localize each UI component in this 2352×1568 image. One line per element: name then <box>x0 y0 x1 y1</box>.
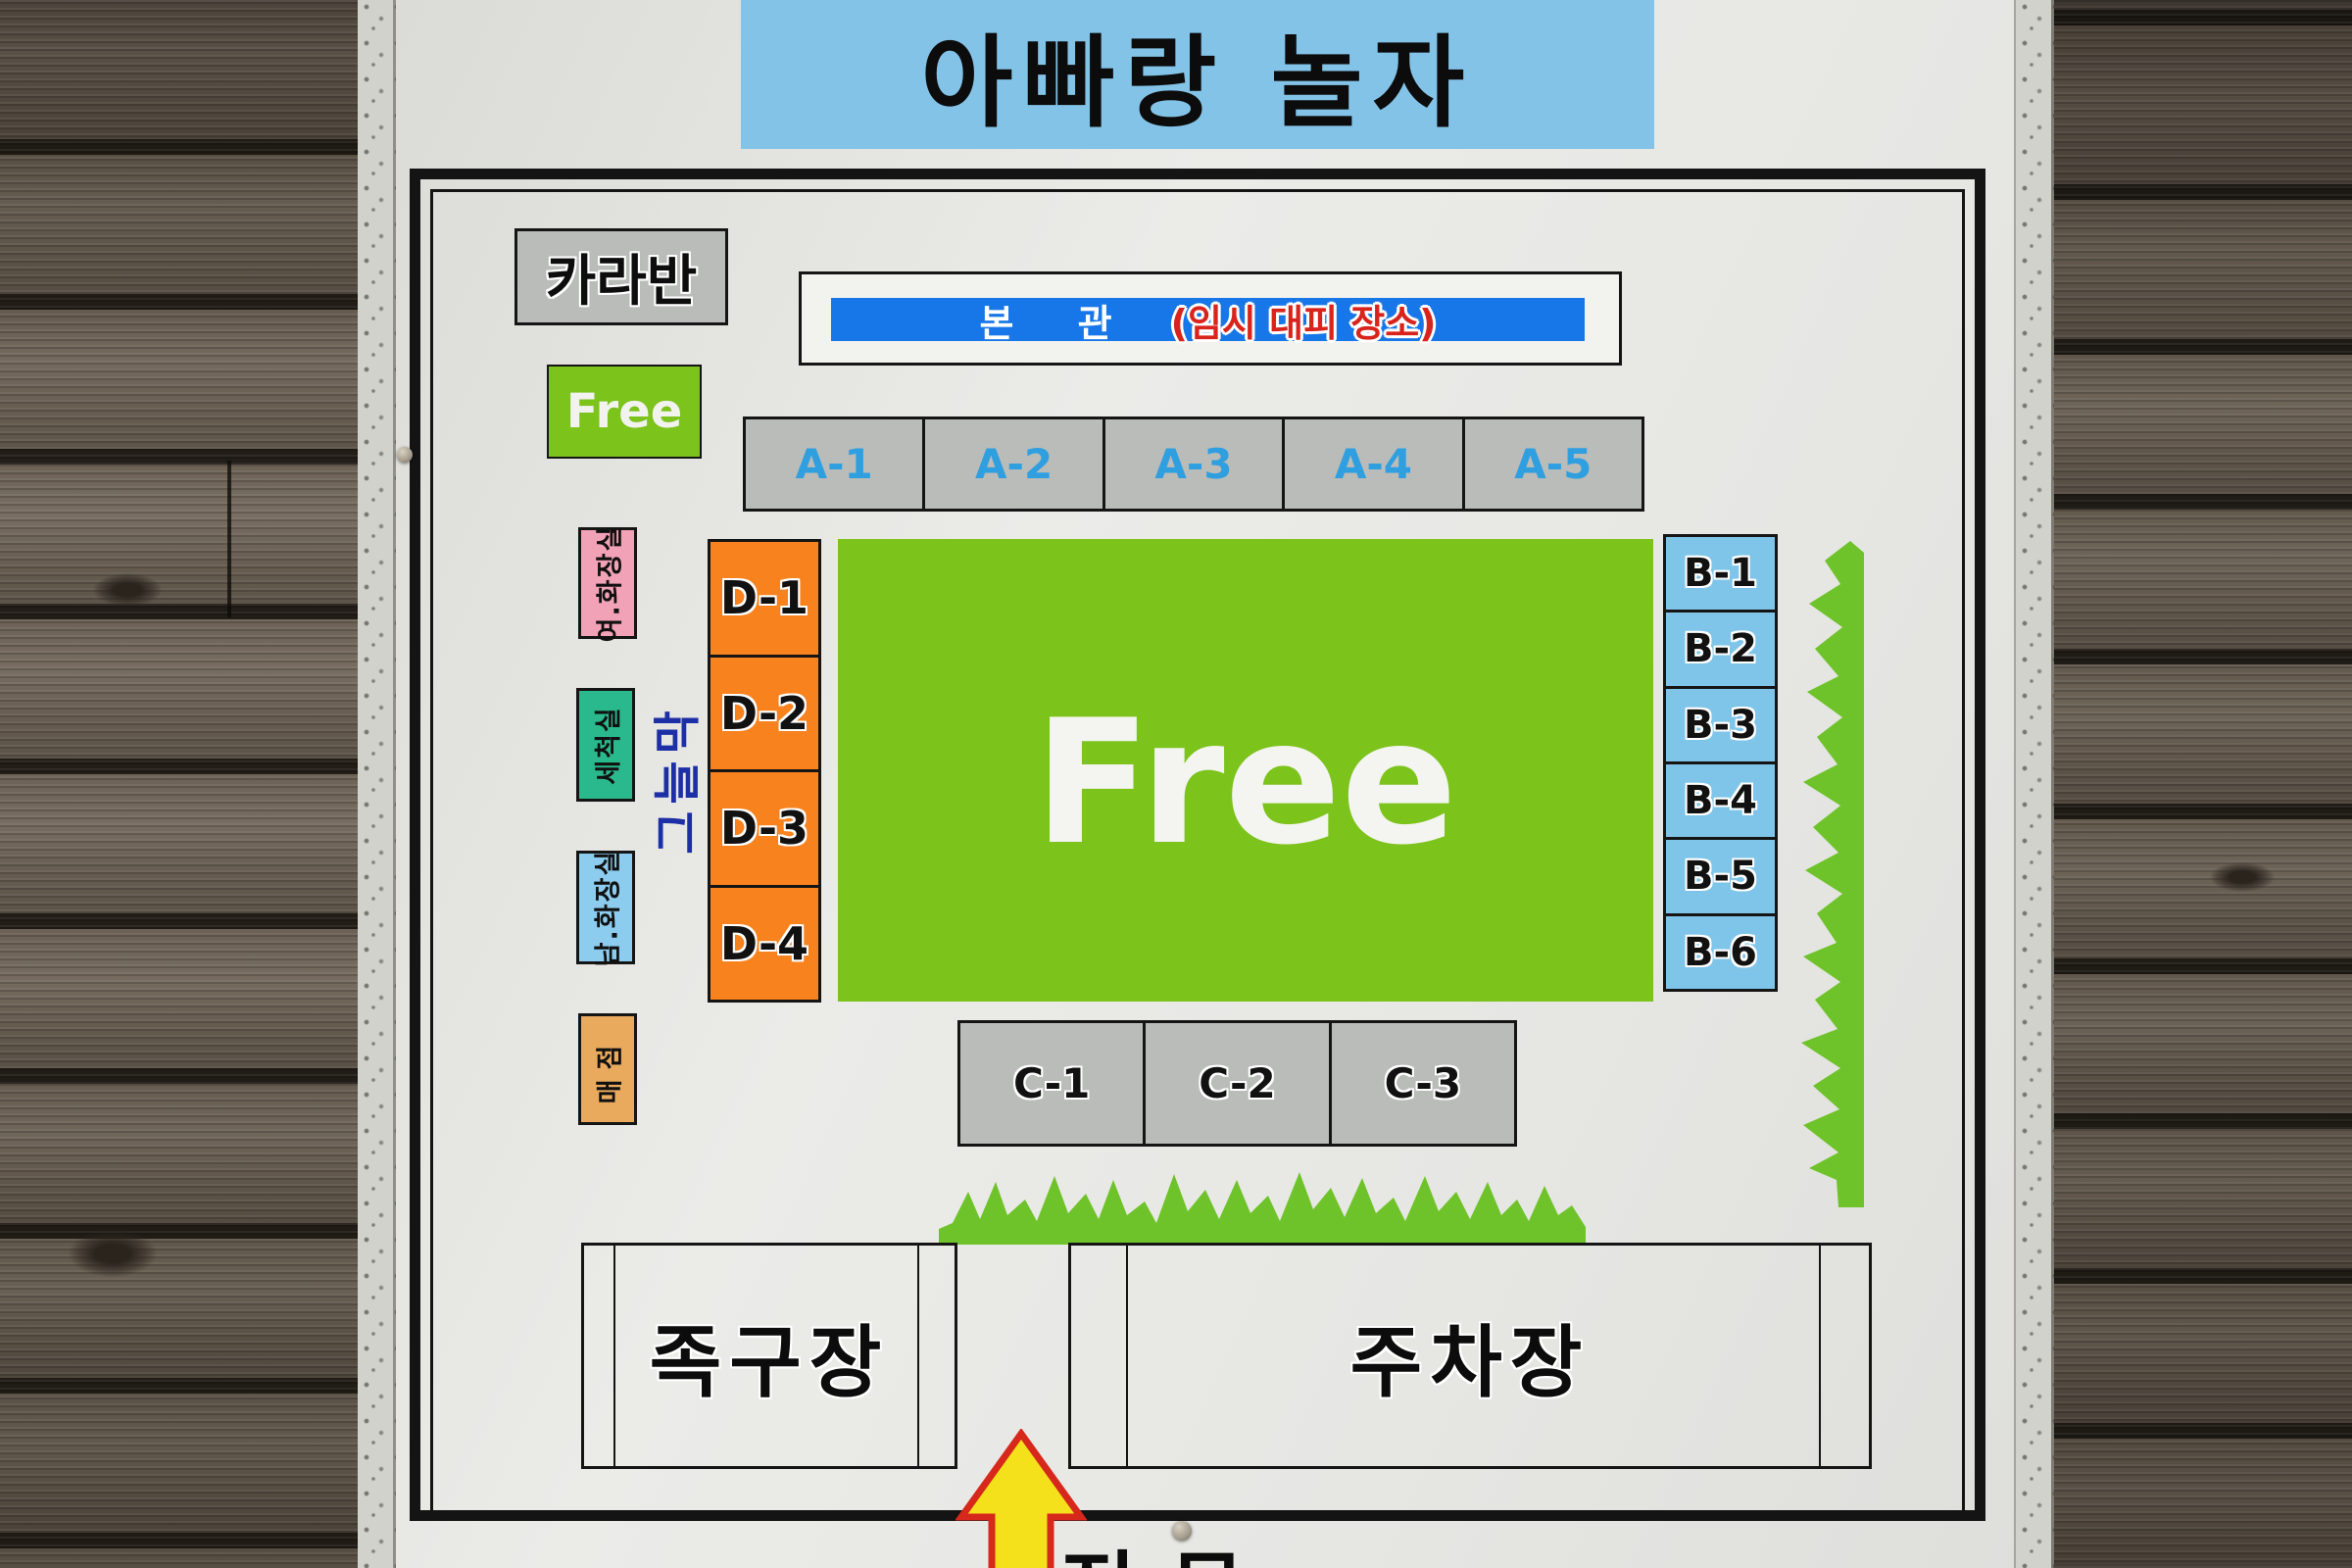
main-gate-label: 정문 <box>1060 1525 1279 1568</box>
site-a5: A-5 <box>1462 419 1641 509</box>
site-d2: D-2 <box>710 655 818 770</box>
wood-knot <box>69 1230 157 1277</box>
facility-store-label: 매점 <box>589 1035 627 1103</box>
court-inner-line <box>1819 1246 1821 1466</box>
zone-caravan-label: 카라반 <box>546 237 698 317</box>
screw <box>1172 1521 1192 1541</box>
court-inner-line <box>1126 1246 1128 1466</box>
facility-men-restroom-label: 남.화장실 <box>587 849 625 966</box>
facility-wash-room-label: 세척실 <box>587 706 625 785</box>
facility-store: 매점 <box>578 1013 637 1125</box>
main-building-label: 본 관 <box>979 293 1137 347</box>
screw <box>397 447 413 463</box>
site-c2: C-2 <box>1143 1023 1328 1144</box>
campground-map-sign-photo: 아빠랑 놀자 카라반 Free 본 관 (임시 대피 장소) A-1 A-2 A… <box>0 0 2352 1568</box>
court-inner-line <box>917 1246 919 1466</box>
site-d4: D-4 <box>710 885 818 1001</box>
wood-plank-wall-left <box>0 0 358 1568</box>
facility-shade-canopy-label: 그늘막 <box>639 704 708 854</box>
site-d1: D-1 <box>710 542 818 655</box>
grass-band-bottom <box>939 1166 1586 1245</box>
zone-caravan: 카라반 <box>514 228 728 325</box>
zone-free-field-label: Free <box>1034 659 1457 883</box>
court-inner-line <box>613 1246 615 1466</box>
site-c3: C-3 <box>1329 1023 1514 1144</box>
zone-free-small-label: Free <box>566 384 683 439</box>
site-d3: D-3 <box>710 769 818 885</box>
site-b1: B-1 <box>1666 537 1775 610</box>
main-building-note: (임시 대피 장소) <box>1171 293 1437 347</box>
wood-plank-seam <box>227 461 231 617</box>
site-row-a: A-1 A-2 A-3 A-4 A-5 <box>743 416 1644 512</box>
sign-title: 아빠랑 놀자 <box>921 3 1475 147</box>
board-edge-left <box>358 0 396 1568</box>
site-b5: B-5 <box>1666 837 1775 912</box>
wood-plank-wall-right <box>2051 0 2352 1568</box>
parking-lot-box: 주차장 <box>1068 1243 1872 1469</box>
wood-knot <box>93 573 162 607</box>
main-building-box: 본 관 (임시 대피 장소) <box>799 271 1622 366</box>
facility-women-restroom: 여.화장실 <box>578 527 637 639</box>
site-c1: C-1 <box>960 1023 1143 1144</box>
grass-strip-right <box>1793 541 1864 1207</box>
site-row-c: C-1 C-2 C-3 <box>957 1020 1517 1147</box>
site-column-b: B-1 B-2 B-3 B-4 B-5 B-6 <box>1663 534 1778 992</box>
site-b3: B-3 <box>1666 686 1775 761</box>
site-b6: B-6 <box>1666 913 1775 989</box>
zone-free-field: Free <box>838 539 1653 1002</box>
site-b4: B-4 <box>1666 761 1775 837</box>
zone-free-small: Free <box>547 365 702 459</box>
board-edge-right <box>2014 0 2054 1568</box>
site-a3: A-3 <box>1102 419 1282 509</box>
title-banner: 아빠랑 놀자 <box>741 0 1654 149</box>
facility-men-restroom: 남.화장실 <box>576 851 635 964</box>
foot-volleyball-court-label: 족구장 <box>650 1299 890 1413</box>
site-a1: A-1 <box>746 419 922 509</box>
facility-women-restroom-label: 여.화장실 <box>589 524 627 642</box>
foot-volleyball-court-box: 족구장 <box>581 1243 957 1469</box>
site-a2: A-2 <box>922 419 1102 509</box>
parking-lot-label: 주차장 <box>1350 1299 1591 1413</box>
site-column-d: D-1 D-2 D-3 D-4 <box>708 539 821 1003</box>
wood-knot <box>2210 862 2275 892</box>
site-b2: B-2 <box>1666 610 1775 685</box>
main-building-bar: 본 관 (임시 대피 장소) <box>831 298 1585 341</box>
site-a4: A-4 <box>1282 419 1461 509</box>
